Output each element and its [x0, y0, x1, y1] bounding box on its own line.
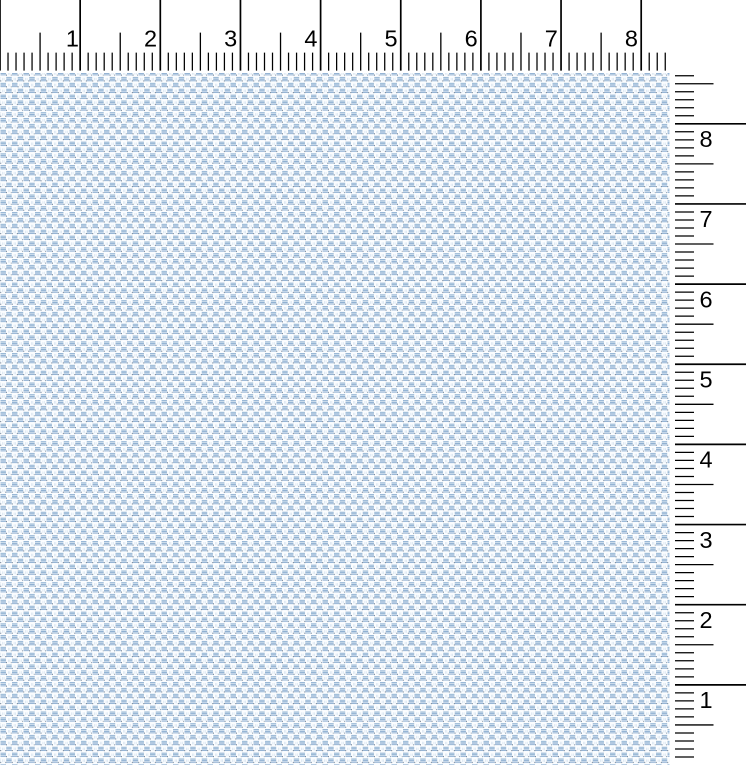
svg-text:3: 3	[700, 527, 713, 553]
svg-text:4: 4	[304, 25, 317, 51]
svg-text:7: 7	[700, 206, 713, 232]
svg-text:8: 8	[625, 25, 638, 51]
svg-text:1: 1	[66, 25, 79, 51]
svg-text:3: 3	[224, 25, 237, 51]
svg-text:2: 2	[700, 607, 713, 633]
svg-text:7: 7	[545, 25, 558, 51]
svg-text:1: 1	[700, 687, 713, 713]
svg-text:4: 4	[700, 447, 713, 473]
svg-text:8: 8	[700, 126, 713, 152]
svg-text:2: 2	[144, 25, 157, 51]
svg-text:5: 5	[384, 25, 397, 51]
svg-text:6: 6	[465, 25, 478, 51]
svg-text:5: 5	[700, 366, 713, 392]
svg-text:6: 6	[700, 286, 713, 312]
